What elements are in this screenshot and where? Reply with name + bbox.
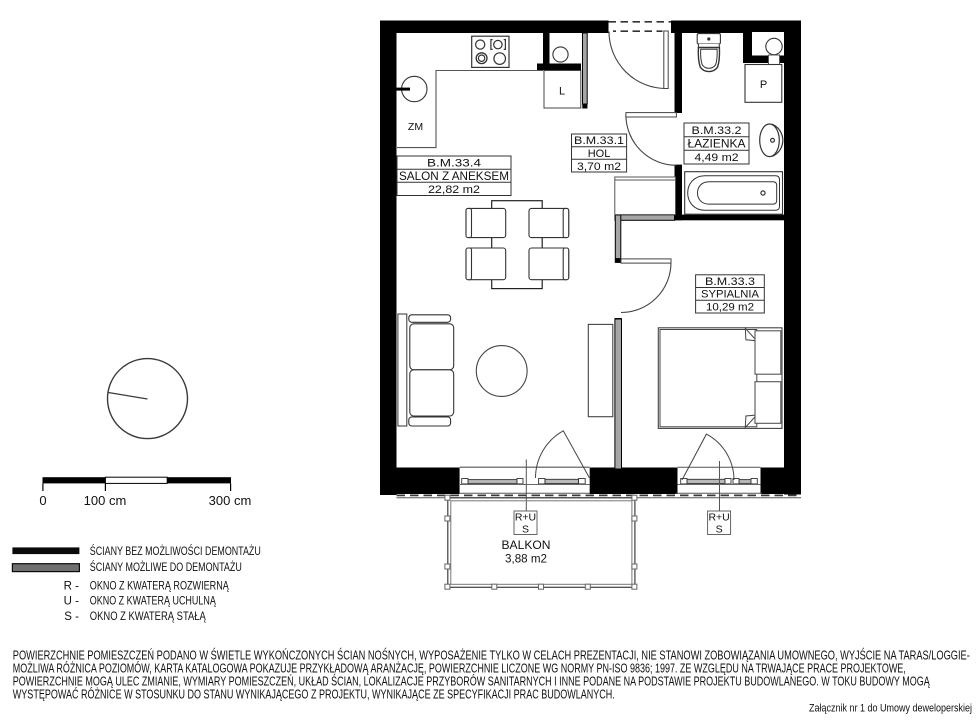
svg-text:BALKON: BALKON bbox=[502, 540, 551, 552]
svg-text:4,49 m2: 4,49 m2 bbox=[695, 152, 739, 164]
svg-text:POWIERZCHNIE MOGĄ ULEC ZMIANIE: POWIERZCHNIE MOGĄ ULEC ZMIANIE, WYMIARY … bbox=[13, 674, 930, 689]
svg-text:P: P bbox=[760, 79, 767, 91]
svg-text:ŚCIANY MOŻLIWE DO DEMONTAŻU: ŚCIANY MOŻLIWE DO DEMONTAŻU bbox=[90, 561, 242, 574]
svg-text:B.M.33.1: B.M.33.1 bbox=[574, 135, 624, 147]
svg-text:L: L bbox=[559, 86, 565, 98]
svg-text:Załącznik nr 1 do Umowy dewelo: Załącznik nr 1 do Umowy deweloperskiej bbox=[809, 703, 972, 715]
svg-text:100 cm: 100 cm bbox=[84, 493, 127, 508]
svg-text:R+U: R+U bbox=[515, 512, 536, 524]
svg-text:S: S bbox=[522, 524, 529, 536]
svg-text:B.M.33.3: B.M.33.3 bbox=[705, 276, 755, 288]
svg-text:U -: U - bbox=[64, 596, 80, 608]
svg-text:OKNO Z KWATERĄ UCHULNĄ: OKNO Z KWATERĄ UCHULNĄ bbox=[90, 596, 216, 608]
svg-text:22,82 m2: 22,82 m2 bbox=[428, 184, 480, 196]
svg-text:ZM: ZM bbox=[408, 121, 423, 133]
svg-text:POWIERZCHNIE POMIESZCZEŃ PODAN: POWIERZCHNIE POMIESZCZEŃ PODANO W ŚWIETL… bbox=[13, 648, 970, 663]
svg-text:B.M.33.4: B.M.33.4 bbox=[427, 158, 481, 170]
svg-text:0: 0 bbox=[39, 493, 46, 508]
svg-text:R+U: R+U bbox=[708, 512, 729, 524]
svg-text:OKNO Z KWATERĄ ROZWIERNĄ: OKNO Z KWATERĄ ROZWIERNĄ bbox=[90, 581, 229, 593]
svg-text:SALON Z ANEKSEM: SALON Z ANEKSEM bbox=[399, 171, 509, 183]
svg-text:MOŻLIWA RÓŻNICA POZIOMÓW, KART: MOŻLIWA RÓŻNICA POZIOMÓW, KARTA KATALOGO… bbox=[13, 661, 906, 676]
svg-text:S -: S - bbox=[64, 611, 79, 623]
svg-text:10,29 m2: 10,29 m2 bbox=[706, 301, 754, 313]
svg-text:OKNO Z KWATERĄ STAŁĄ: OKNO Z KWATERĄ STAŁĄ bbox=[90, 611, 206, 623]
svg-text:3,88 m2: 3,88 m2 bbox=[505, 554, 547, 566]
svg-text:R -: R - bbox=[64, 581, 80, 593]
svg-text:B.M.33.2: B.M.33.2 bbox=[692, 125, 742, 137]
svg-text:HOL: HOL bbox=[588, 148, 611, 160]
svg-text:WYSTĘPOWAĆ RÓŻNICE W STOSUNKU: WYSTĘPOWAĆ RÓŻNICE W STOSUNKU DO STANU W… bbox=[13, 687, 615, 702]
svg-text:SYPIALNIA: SYPIALNIA bbox=[701, 289, 760, 301]
svg-text:ŁAZIENKA: ŁAZIENKA bbox=[688, 139, 746, 151]
svg-text:ŚCIANY BEZ MOŻLIWOŚCI DEMONTAŻ: ŚCIANY BEZ MOŻLIWOŚCI DEMONTAŻU bbox=[90, 545, 261, 558]
svg-text:300 cm: 300 cm bbox=[209, 493, 252, 508]
svg-text:S: S bbox=[716, 524, 723, 536]
svg-text:3,70 m2: 3,70 m2 bbox=[577, 161, 621, 173]
